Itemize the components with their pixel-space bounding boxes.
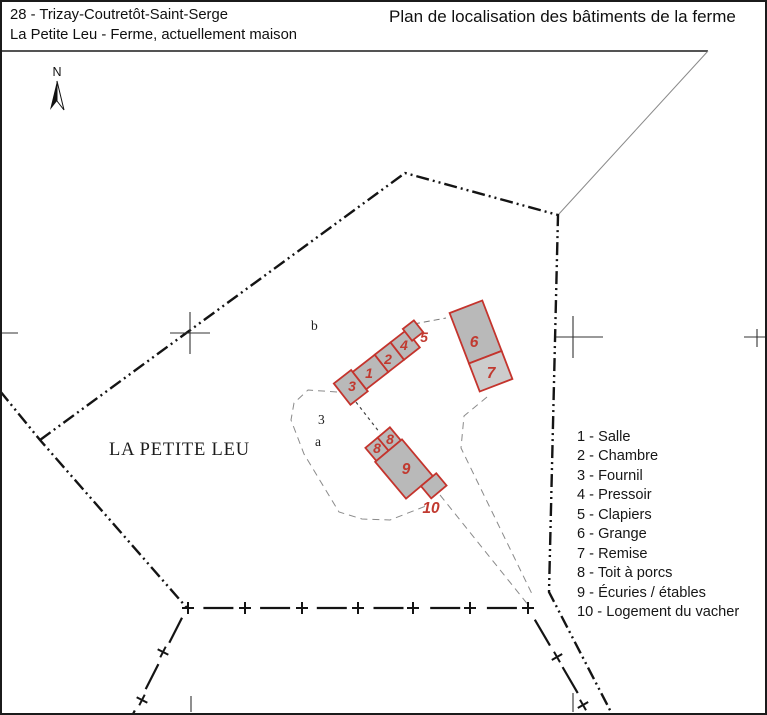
track-lane-left	[440, 495, 529, 606]
parcel-letter-a: a	[315, 434, 321, 450]
building-number: 1	[365, 365, 373, 381]
page-title: Plan de localisation des bâtiments de la…	[389, 7, 736, 27]
boundary-line-west	[0, 391, 187, 608]
legend-item: 4 - Pressoir	[577, 486, 739, 505]
north-label: N	[52, 65, 61, 79]
building-number: 3	[348, 378, 356, 394]
north-arrow-icon: N	[50, 65, 64, 110]
plan-page: { "header": { "region_line": "28 - Triza…	[0, 0, 767, 715]
legend-item: 6 - Grange	[577, 525, 739, 544]
building-number: 2	[383, 351, 392, 367]
survey-cross-west	[170, 312, 210, 354]
parcel-number-3: 3	[318, 412, 325, 428]
parcel-edge-line	[558, 51, 708, 215]
building-number: 4	[399, 337, 408, 353]
header-region-line: 28 - Trizay-Coutretôt-Saint-Serge	[10, 7, 228, 23]
legend: 1 - Salle 2 - Chambre 3 - Fournil 4 - Pr…	[577, 428, 739, 623]
link-building5-building6	[414, 318, 446, 324]
north-needle-light	[57, 81, 64, 110]
building-number: 6	[470, 334, 479, 351]
legend-item: 8 - Toit à porcs	[577, 564, 739, 583]
track-lane-right	[461, 397, 533, 596]
survey-cross-east	[556, 316, 603, 358]
header-site-line: La Petite Leu - Ferme, actuellement mais…	[10, 27, 297, 43]
legend-item: 9 - Écuries / étables	[577, 584, 739, 603]
legend-item: 7 - Remise	[577, 545, 739, 564]
legend-item: 2 - Chambre	[577, 447, 739, 466]
building-number: 10	[422, 500, 440, 517]
fence-line-southwest	[133, 608, 187, 714]
building-number: 5	[420, 329, 428, 345]
legend-item: 3 - Fournil	[577, 467, 739, 486]
link-building3-building8	[352, 397, 380, 433]
edge-tick-right	[744, 329, 765, 347]
legend-item: 5 - Clapiers	[577, 506, 739, 525]
building-number: 9	[402, 461, 411, 478]
legend-item: 10 - Logement du vacher	[577, 603, 739, 622]
building-number: 8	[386, 431, 394, 447]
north-needle-dark	[50, 81, 57, 110]
building-number: 8	[373, 440, 381, 456]
legend-item: 1 - Salle	[577, 428, 739, 447]
building-block-6-7	[450, 301, 513, 392]
parcel-letter-b: b	[311, 318, 318, 334]
place-name-label: LA PETITE LEU	[109, 440, 250, 461]
fence-plus-marks	[134, 602, 591, 713]
building-number: 7	[487, 365, 497, 382]
edge-ticks-bottom	[191, 693, 573, 712]
